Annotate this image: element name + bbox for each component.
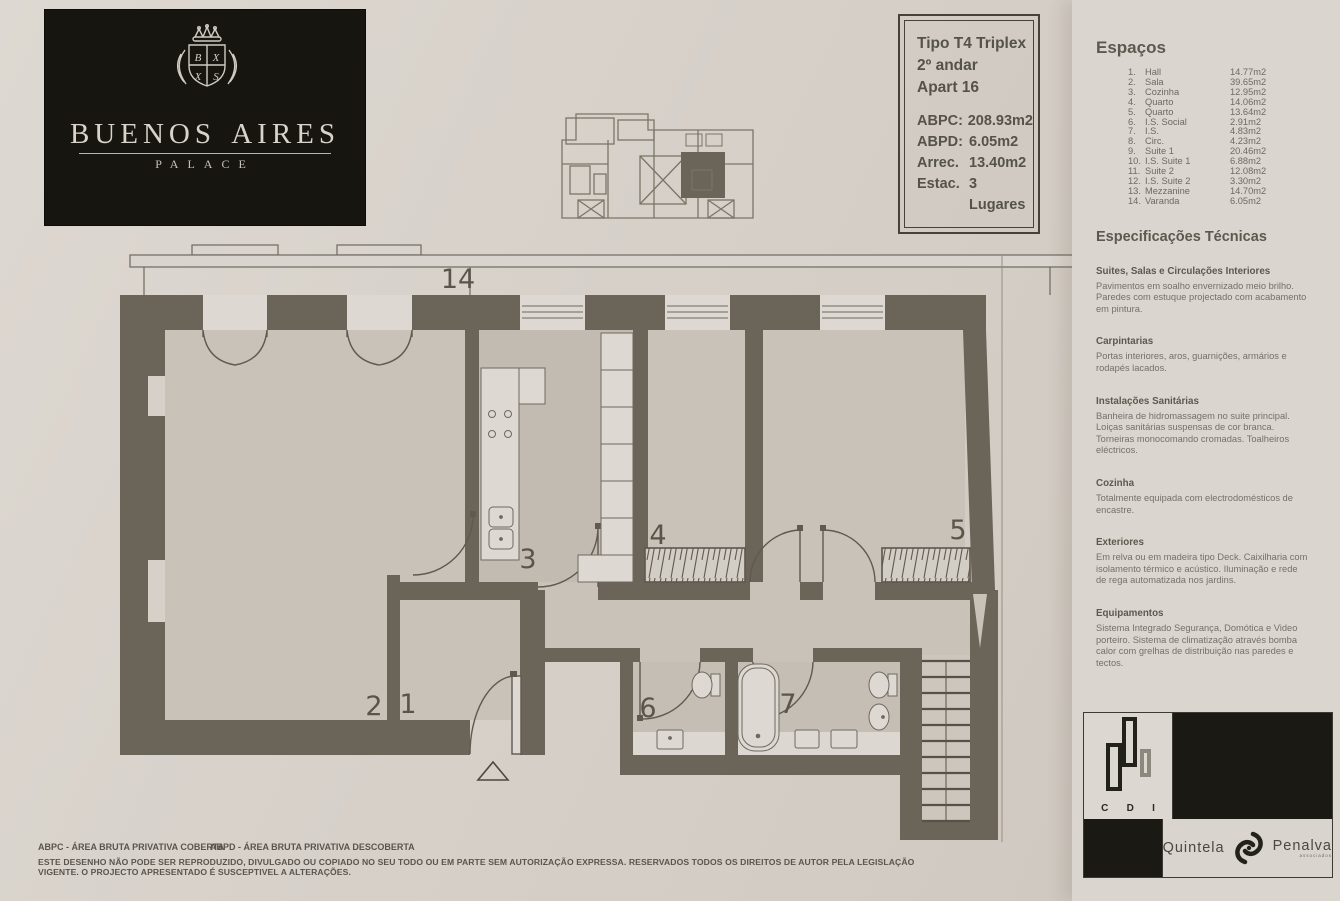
windows bbox=[520, 295, 885, 330]
apartment-floor: 2º andar bbox=[917, 55, 1033, 77]
espacos-row: 14.Varanda6.05m2 bbox=[1128, 197, 1280, 207]
label-hall: 1 bbox=[399, 689, 416, 720]
apartment-type: Tipo T4 Triplex bbox=[917, 33, 1033, 55]
sink-icon bbox=[795, 730, 819, 748]
agency-name-left: Quintela bbox=[1163, 840, 1225, 856]
heraldic-crest-icon: BX XS bbox=[45, 24, 365, 107]
tech-section-equipamentos: Equipamentos Sistema Integrado Segurança… bbox=[1096, 608, 1310, 669]
svg-text:X: X bbox=[194, 71, 203, 83]
wall-recess bbox=[148, 560, 165, 622]
brand-name: Buenos Aires bbox=[45, 109, 365, 149]
cdi-logo-cell: CDI bbox=[1084, 713, 1173, 819]
label-varanda: 14 bbox=[441, 264, 475, 295]
especificacoes-heading: Especificações Técnicas bbox=[1096, 229, 1340, 245]
spec-row: ABPD: 6.05m2 bbox=[917, 132, 1033, 153]
building-key-plan bbox=[548, 100, 768, 233]
espacos-heading: Espaços bbox=[1096, 38, 1340, 58]
apartment-areas: ABPC: 208.93m2 ABPD: 6.05m2 Arrec. 13.40… bbox=[917, 111, 1033, 216]
cdi-logo-icon bbox=[1084, 713, 1172, 798]
label-quarto-4: 4 bbox=[649, 520, 666, 551]
bedroom5-window bbox=[820, 295, 885, 330]
spec-row: ABPC: 208.93m2 bbox=[917, 111, 1033, 132]
specs-sidebar: Espaços 1.Hall14.77m2 2.Sala39.65m2 3.Co… bbox=[1072, 0, 1340, 901]
agency-tagline: associados bbox=[1299, 853, 1332, 858]
black-panel bbox=[1173, 713, 1332, 819]
toilet-icon bbox=[869, 672, 889, 698]
tech-section-exteriores: Exteriores Em relva ou em madeira tipo D… bbox=[1096, 537, 1310, 587]
entrance-marker bbox=[478, 762, 508, 780]
footer-disclaimer: ESTE DESENHO NÃO PODE SER REPRODUZIDO, D… bbox=[38, 857, 938, 877]
footer-abbr-abpd: ABPD - ÁREA BRUTA PRIVATIVA DESCOBERTA bbox=[210, 842, 415, 852]
floor-plan: 14 2 1 3 4 5 6 7 bbox=[118, 238, 1078, 851]
bedroom4-window bbox=[665, 295, 730, 330]
agency-name-right: Penalva bbox=[1273, 838, 1332, 854]
highlighted-apartment-unit bbox=[681, 152, 725, 198]
varanda bbox=[130, 245, 1078, 295]
svg-text:X: X bbox=[212, 52, 221, 64]
toilet-icon bbox=[692, 672, 712, 698]
spec-row: Arrec. 13.40m2 bbox=[917, 153, 1033, 174]
footer-abbr-abpc: ABPC - ÁREA BRUTA PRIVATIVA COBERTA bbox=[38, 842, 224, 852]
scanned-brochure-page: BX XS Buenos Aires PALACE bbox=[0, 0, 1340, 901]
agency-signature: Quintela Penalva associados bbox=[1163, 819, 1332, 877]
brand-rule bbox=[79, 153, 331, 154]
label-is-social: 6 bbox=[639, 693, 656, 724]
brand-logo-box: BX XS Buenos Aires PALACE bbox=[45, 10, 365, 225]
tech-section-interiores: Suites, Salas e Circulações Interiores P… bbox=[1096, 266, 1310, 316]
apartment-number: Apart 16 bbox=[917, 77, 1033, 99]
spec-row: Estac. 3 Lugares bbox=[917, 174, 1033, 216]
black-panel bbox=[1084, 819, 1163, 877]
svg-text:B: B bbox=[195, 52, 202, 64]
svg-text:S: S bbox=[213, 71, 219, 83]
sink-icon bbox=[831, 730, 857, 748]
label-sala: 2 bbox=[365, 691, 382, 722]
apartment-info-inner: Tipo T4 Triplex 2º andar Apart 16 ABPC: … bbox=[904, 20, 1034, 228]
apartment-info-box: Tipo T4 Triplex 2º andar Apart 16 ABPC: … bbox=[898, 14, 1040, 234]
agency-swirl-icon bbox=[1232, 831, 1266, 865]
tech-section-sanitarias: Instalações Sanitárias Banheira de hidro… bbox=[1096, 396, 1310, 457]
brand-subtitle: PALACE bbox=[45, 157, 365, 172]
tech-section-carpintarias: Carpintarias Portas interiores, aros, gu… bbox=[1096, 336, 1310, 374]
kitchen-window bbox=[520, 295, 585, 330]
wall-recess bbox=[148, 376, 165, 416]
bidet-icon bbox=[869, 704, 889, 730]
tech-section-cozinha: Cozinha Totalmente equipada com electrod… bbox=[1096, 478, 1310, 516]
espacos-list: 1.Hall14.77m2 2.Sala39.65m2 3.Cozinha12.… bbox=[1128, 68, 1280, 207]
cdi-letters: CDI bbox=[1084, 803, 1172, 814]
label-is-7: 7 bbox=[779, 689, 796, 720]
label-quarto-5: 5 bbox=[949, 515, 966, 546]
agency-logo-block: CDI Quintela Penalva associados bbox=[1083, 712, 1333, 878]
label-cozinha: 3 bbox=[519, 544, 536, 575]
